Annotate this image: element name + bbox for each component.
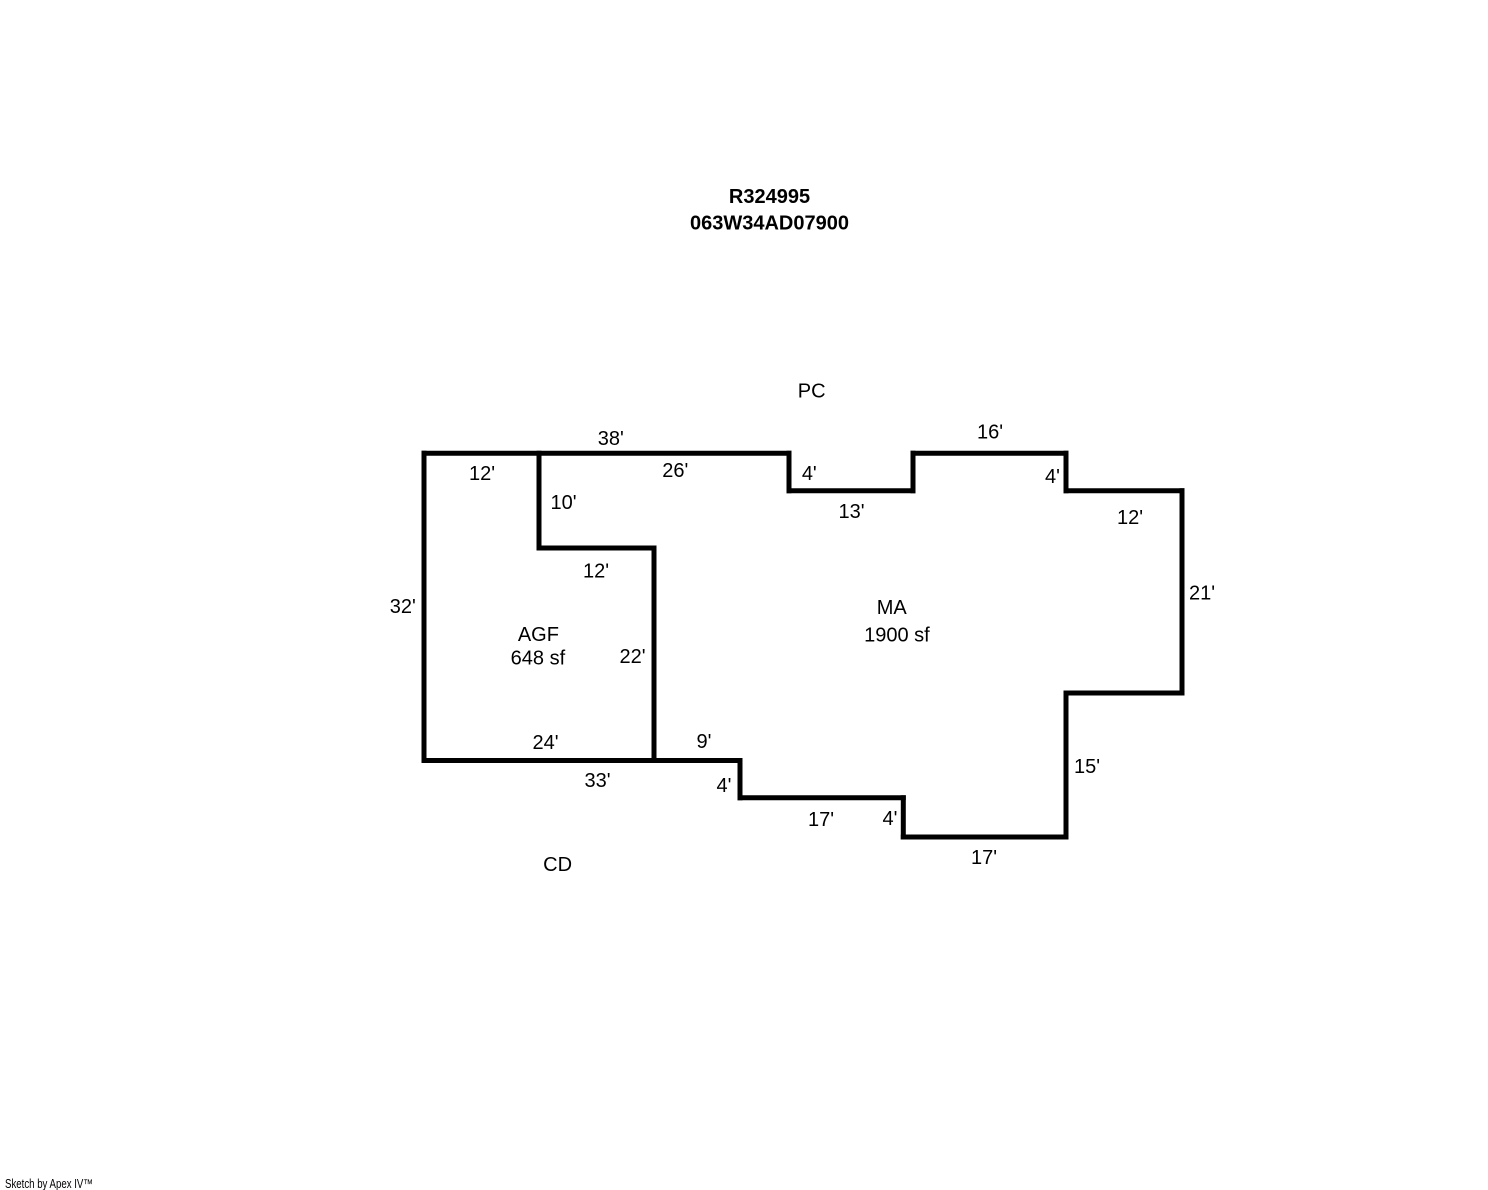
svg-text:AGF: AGF bbox=[518, 624, 559, 646]
svg-text:1900 sf: 1900 sf bbox=[864, 625, 930, 647]
svg-text:Sketch by Apex IV™: Sketch by Apex IV™ bbox=[5, 1177, 93, 1190]
svg-text:4': 4' bbox=[717, 775, 732, 797]
svg-text:4': 4' bbox=[802, 463, 817, 485]
svg-text:12': 12' bbox=[583, 561, 609, 583]
svg-text:PC: PC bbox=[798, 380, 826, 402]
svg-text:17': 17' bbox=[808, 809, 834, 831]
svg-text:4': 4' bbox=[1045, 466, 1060, 488]
svg-text:648 sf: 648 sf bbox=[511, 647, 566, 669]
svg-text:R324995: R324995 bbox=[729, 186, 810, 208]
svg-text:16': 16' bbox=[977, 422, 1003, 444]
svg-text:12': 12' bbox=[1117, 507, 1143, 529]
svg-text:33': 33' bbox=[584, 770, 610, 792]
svg-text:24': 24' bbox=[532, 732, 558, 754]
svg-text:26': 26' bbox=[662, 460, 688, 482]
svg-text:17': 17' bbox=[971, 847, 997, 869]
svg-text:38': 38' bbox=[598, 428, 624, 450]
svg-text:063W34AD07900: 063W34AD07900 bbox=[690, 213, 849, 235]
svg-text:10': 10' bbox=[550, 492, 576, 514]
svg-text:22': 22' bbox=[619, 646, 645, 668]
svg-text:12': 12' bbox=[469, 463, 495, 485]
svg-text:4': 4' bbox=[883, 808, 898, 830]
svg-text:13': 13' bbox=[838, 501, 864, 523]
svg-text:MA: MA bbox=[877, 597, 908, 619]
svg-text:9': 9' bbox=[697, 731, 712, 753]
svg-text:15': 15' bbox=[1074, 756, 1100, 778]
svg-text:32': 32' bbox=[390, 596, 416, 618]
svg-text:CD: CD bbox=[543, 854, 572, 876]
svg-text:21': 21' bbox=[1189, 582, 1215, 604]
